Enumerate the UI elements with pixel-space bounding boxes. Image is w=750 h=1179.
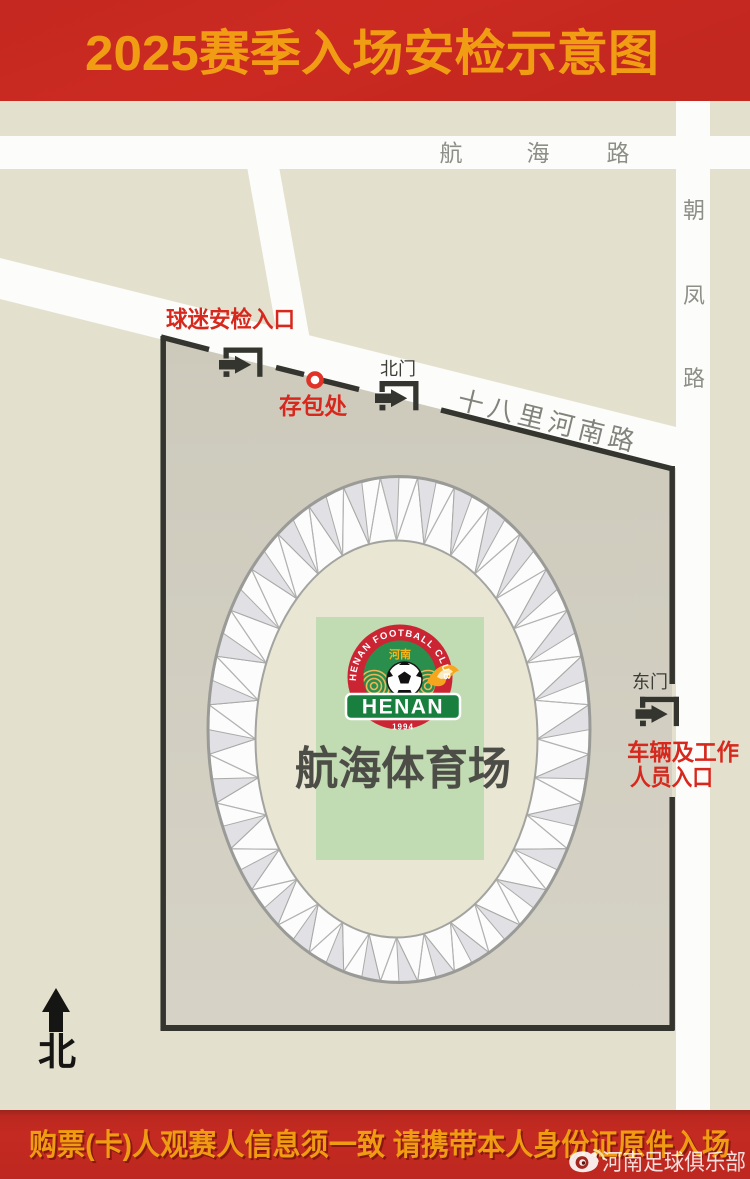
svg-text:2025赛季入场安检示意图: 2025赛季入场安检示意图 <box>85 27 659 81</box>
svg-text:航海体育场: 航海体育场 <box>295 743 511 794</box>
svg-text:路: 路 <box>683 366 705 391</box>
svg-text:北: 北 <box>38 1032 76 1074</box>
svg-text:朝: 朝 <box>683 198 705 223</box>
svg-text:HENAN: HENAN <box>362 696 444 719</box>
svg-text:人员入口: 人员入口 <box>630 764 713 790</box>
svg-text:球迷安检入口: 球迷安检入口 <box>166 306 295 332</box>
svg-text:河南足球俱乐部: 河南足球俱乐部 <box>602 1150 746 1175</box>
svg-text:航: 航 <box>440 140 463 166</box>
svg-text:存包处: 存包处 <box>279 393 347 419</box>
svg-text:路: 路 <box>607 140 630 166</box>
svg-text:海: 海 <box>527 140 550 166</box>
svg-text:东门: 东门 <box>632 672 668 692</box>
svg-text:北门: 北门 <box>380 359 416 379</box>
svg-text:车辆及工作: 车辆及工作 <box>627 739 739 765</box>
svg-text:凤: 凤 <box>683 283 705 308</box>
svg-text:河南: 河南 <box>389 647 411 661</box>
svg-text:1994: 1994 <box>392 723 414 732</box>
